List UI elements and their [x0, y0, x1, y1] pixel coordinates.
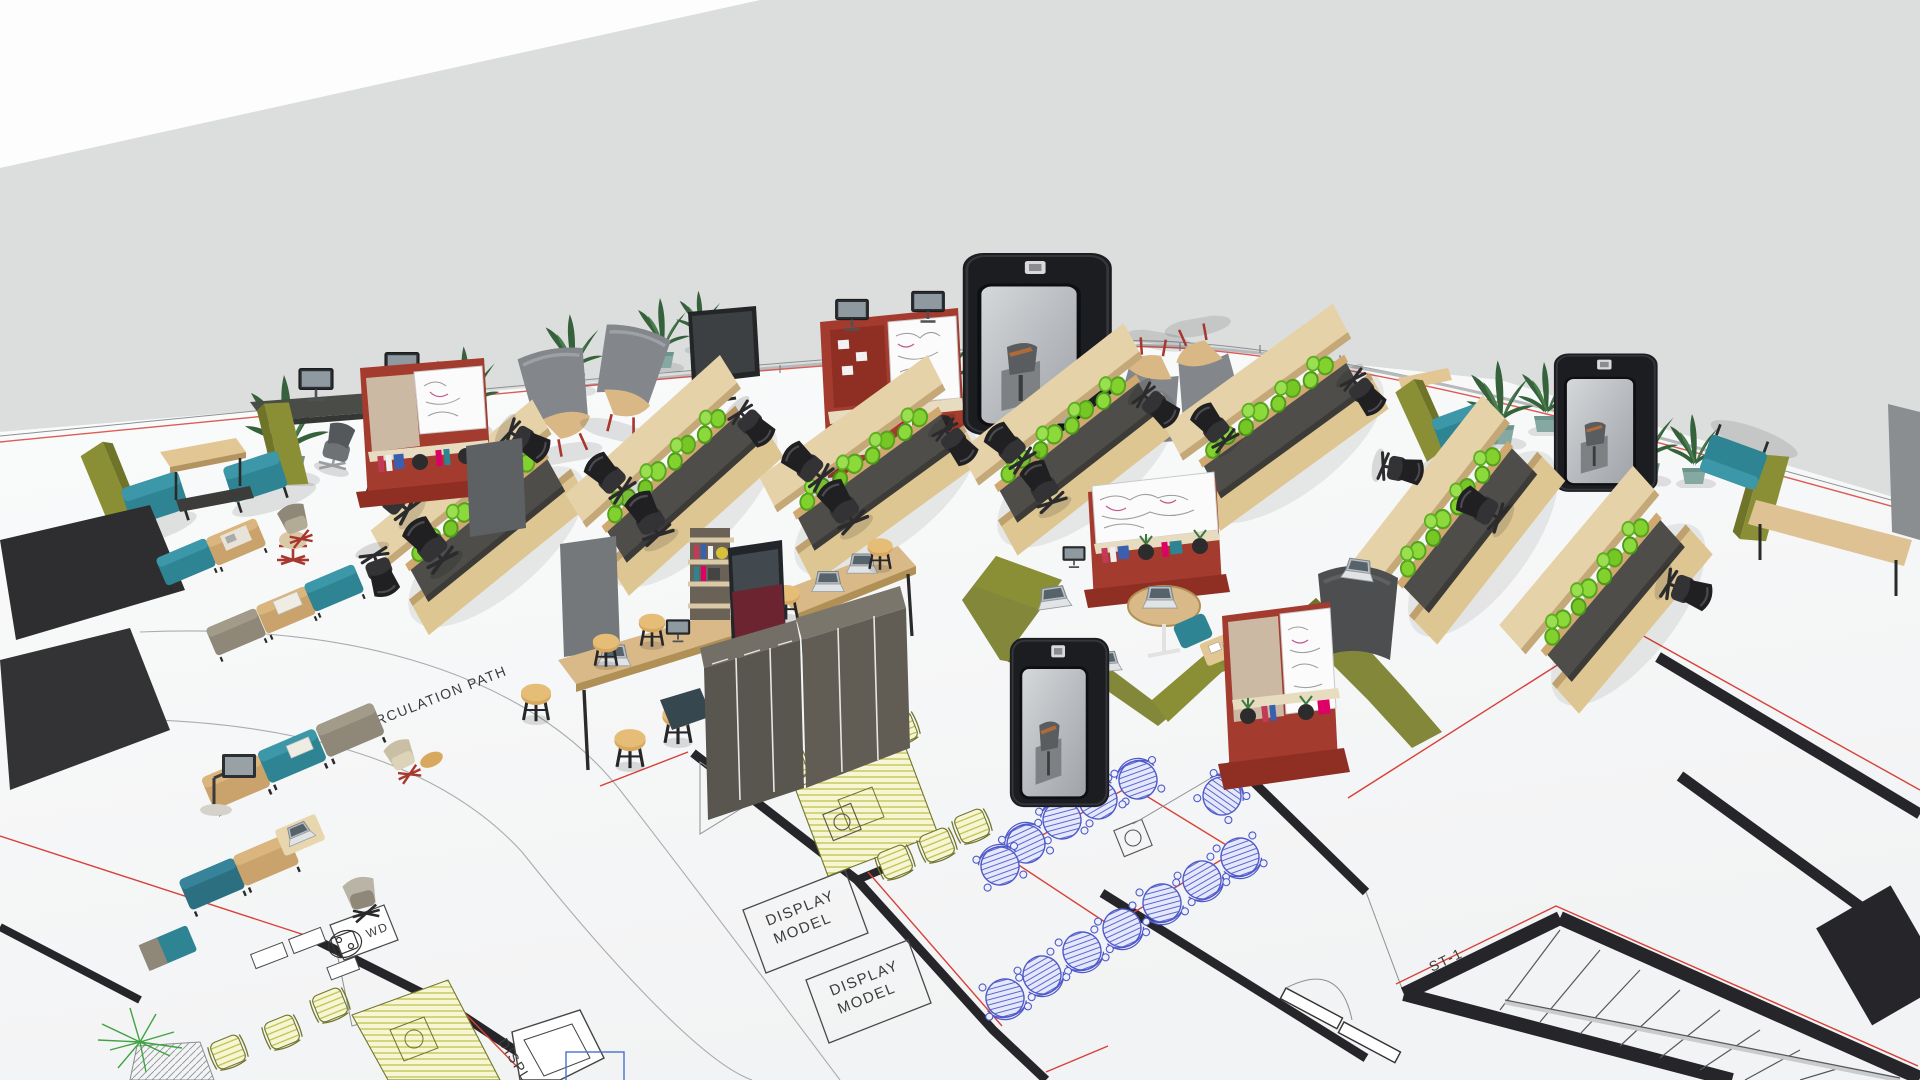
bar-stool[interactable] — [614, 729, 645, 772]
gray-cabinet-block-A[interactable] — [700, 620, 804, 820]
red-shelf-unit-lower[interactable] — [1218, 602, 1350, 790]
freestanding-panel[interactable] — [466, 438, 526, 537]
bar-stool[interactable] — [867, 538, 892, 573]
render-canvas: CIRCULATION PATH DISPLAY MODEL DISPLAY M… — [0, 0, 1920, 1080]
phone-booth-2[interactable] — [1554, 354, 1658, 492]
phone-booth-3[interactable] — [1010, 638, 1109, 807]
privacy-screen — [1888, 404, 1920, 540]
bar-stool[interactable] — [639, 614, 665, 650]
bar-stool[interactable] — [521, 684, 551, 725]
bar-stool[interactable] — [593, 634, 619, 670]
viewport-3d-render: { "scene": { "description": "Aerial 3D r… — [0, 0, 1920, 1080]
